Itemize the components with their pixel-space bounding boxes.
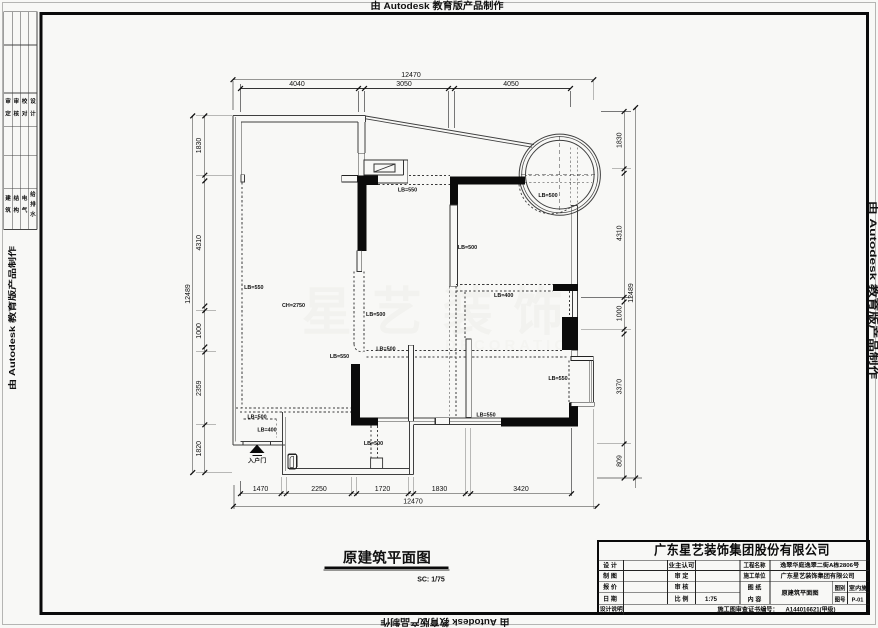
- svg-text:报 价: 报 价: [603, 583, 618, 591]
- svg-text:审: 审: [5, 97, 11, 105]
- svg-text:排: 排: [30, 200, 36, 208]
- svg-text:设: 设: [30, 97, 36, 105]
- svg-text:SC: 1/75: SC: 1/75: [417, 577, 445, 584]
- svg-text:4040: 4040: [289, 81, 305, 88]
- svg-text:设计说明: 设计说明: [600, 605, 623, 613]
- svg-text:4050: 4050: [503, 81, 519, 88]
- svg-text:LB=550: LB=550: [244, 285, 263, 291]
- svg-text:建: 建: [4, 194, 11, 202]
- svg-text:气: 气: [21, 206, 28, 214]
- svg-text:1470: 1470: [253, 486, 269, 493]
- svg-text:入户门: 入户门: [248, 457, 267, 465]
- svg-text:3370: 3370: [617, 379, 624, 395]
- svg-text:LB=500: LB=500: [247, 414, 266, 420]
- svg-text:内 容: 内 容: [748, 596, 762, 604]
- svg-text:1830: 1830: [432, 486, 448, 493]
- svg-text:业主认可: 业主认可: [669, 561, 695, 569]
- svg-text:LB=500: LB=500: [376, 346, 395, 352]
- svg-text:1000: 1000: [196, 323, 203, 339]
- svg-text:4310: 4310: [617, 225, 624, 241]
- svg-text:LB=550: LB=550: [548, 376, 567, 382]
- svg-text:3050: 3050: [396, 81, 412, 88]
- svg-text:施工单位: 施工单位: [744, 572, 766, 580]
- svg-text:设 计: 设 计: [603, 561, 617, 569]
- svg-text:筑: 筑: [5, 206, 11, 214]
- svg-text:核: 核: [13, 110, 19, 118]
- svg-text:LB=500: LB=500: [538, 193, 557, 199]
- svg-text:日 期: 日 期: [603, 595, 617, 603]
- svg-text:1720: 1720: [375, 486, 391, 493]
- svg-text:图号: 图号: [835, 596, 846, 604]
- svg-text:构: 构: [13, 206, 19, 214]
- svg-text:LB=550: LB=550: [476, 412, 495, 418]
- svg-text:LB=500: LB=500: [364, 441, 383, 447]
- svg-text:12489: 12489: [628, 283, 635, 303]
- svg-text:审: 审: [13, 97, 19, 105]
- svg-text:12470: 12470: [401, 72, 421, 79]
- svg-text:3420: 3420: [513, 486, 529, 493]
- svg-text:LB=400: LB=400: [494, 293, 513, 299]
- svg-text:校: 校: [22, 97, 28, 105]
- svg-text:12489: 12489: [185, 284, 192, 304]
- svg-text:P-01: P-01: [852, 598, 864, 604]
- svg-text:电: 电: [22, 194, 28, 202]
- svg-text:由 Autodesk 教育版产品制作: 由 Autodesk 教育版产品制作: [380, 617, 510, 628]
- svg-text:4310: 4310: [196, 235, 203, 251]
- svg-text:2359: 2359: [196, 380, 203, 396]
- svg-text:A144016621(甲级): A144016621(甲级): [786, 606, 836, 614]
- svg-text:LB=550: LB=550: [398, 187, 417, 193]
- svg-text:原建筑平面图: 原建筑平面图: [343, 549, 431, 567]
- svg-text:施工图审查证书编号：: 施工图审查证书编号：: [718, 606, 779, 614]
- svg-text:比 例: 比 例: [675, 595, 689, 603]
- svg-text:广东星艺装饰集团有限公司: 广东星艺装饰集团有限公司: [781, 572, 855, 580]
- svg-text:计: 计: [30, 110, 36, 118]
- svg-text:由 Autodesk 教育版产品制作: 由 Autodesk 教育版产品制作: [7, 246, 17, 390]
- svg-text:审 定: 审 定: [675, 572, 689, 580]
- svg-text:809: 809: [617, 455, 624, 467]
- svg-text:CH=2750: CH=2750: [282, 303, 305, 309]
- svg-text:水: 水: [29, 210, 36, 218]
- svg-text:审 核: 审 核: [675, 583, 689, 591]
- svg-text:星艺装饰: 星艺装饰: [302, 284, 584, 342]
- svg-text:制 图: 制 图: [603, 572, 617, 580]
- svg-text:结: 结: [13, 194, 19, 202]
- svg-text:室内施: 室内施: [849, 584, 868, 592]
- svg-text:工程名称: 工程名称: [744, 561, 766, 569]
- svg-text:对: 对: [22, 110, 28, 118]
- svg-text:LB=550: LB=550: [330, 354, 349, 360]
- svg-text:广东星艺装饰集团股份有限公司: 广东星艺装饰集团股份有限公司: [654, 542, 830, 558]
- svg-text:给: 给: [30, 190, 36, 198]
- svg-text:1830: 1830: [617, 132, 624, 148]
- svg-text:LB=500: LB=500: [458, 245, 477, 251]
- svg-text:LB=400: LB=400: [257, 427, 276, 433]
- svg-text:1000: 1000: [617, 306, 624, 322]
- svg-text:12470: 12470: [403, 499, 423, 506]
- svg-text:逸翠华庭逸翠二街A栋2806号: 逸翠华庭逸翠二街A栋2806号: [780, 561, 859, 569]
- svg-text:2250: 2250: [311, 486, 327, 493]
- svg-text:1820: 1820: [196, 441, 203, 457]
- svg-text:1830: 1830: [196, 138, 203, 154]
- svg-text:定: 定: [4, 110, 11, 118]
- svg-text:LB=500: LB=500: [366, 312, 385, 318]
- svg-text:原建筑平面图: 原建筑平面图: [782, 589, 819, 597]
- svg-text:图 纸: 图 纸: [748, 584, 762, 592]
- svg-text:图别: 图别: [835, 584, 846, 592]
- svg-text:由 Autodesk 教育版产品制作: 由 Autodesk 教育版产品制作: [371, 0, 505, 12]
- svg-text:1:75: 1:75: [705, 597, 718, 603]
